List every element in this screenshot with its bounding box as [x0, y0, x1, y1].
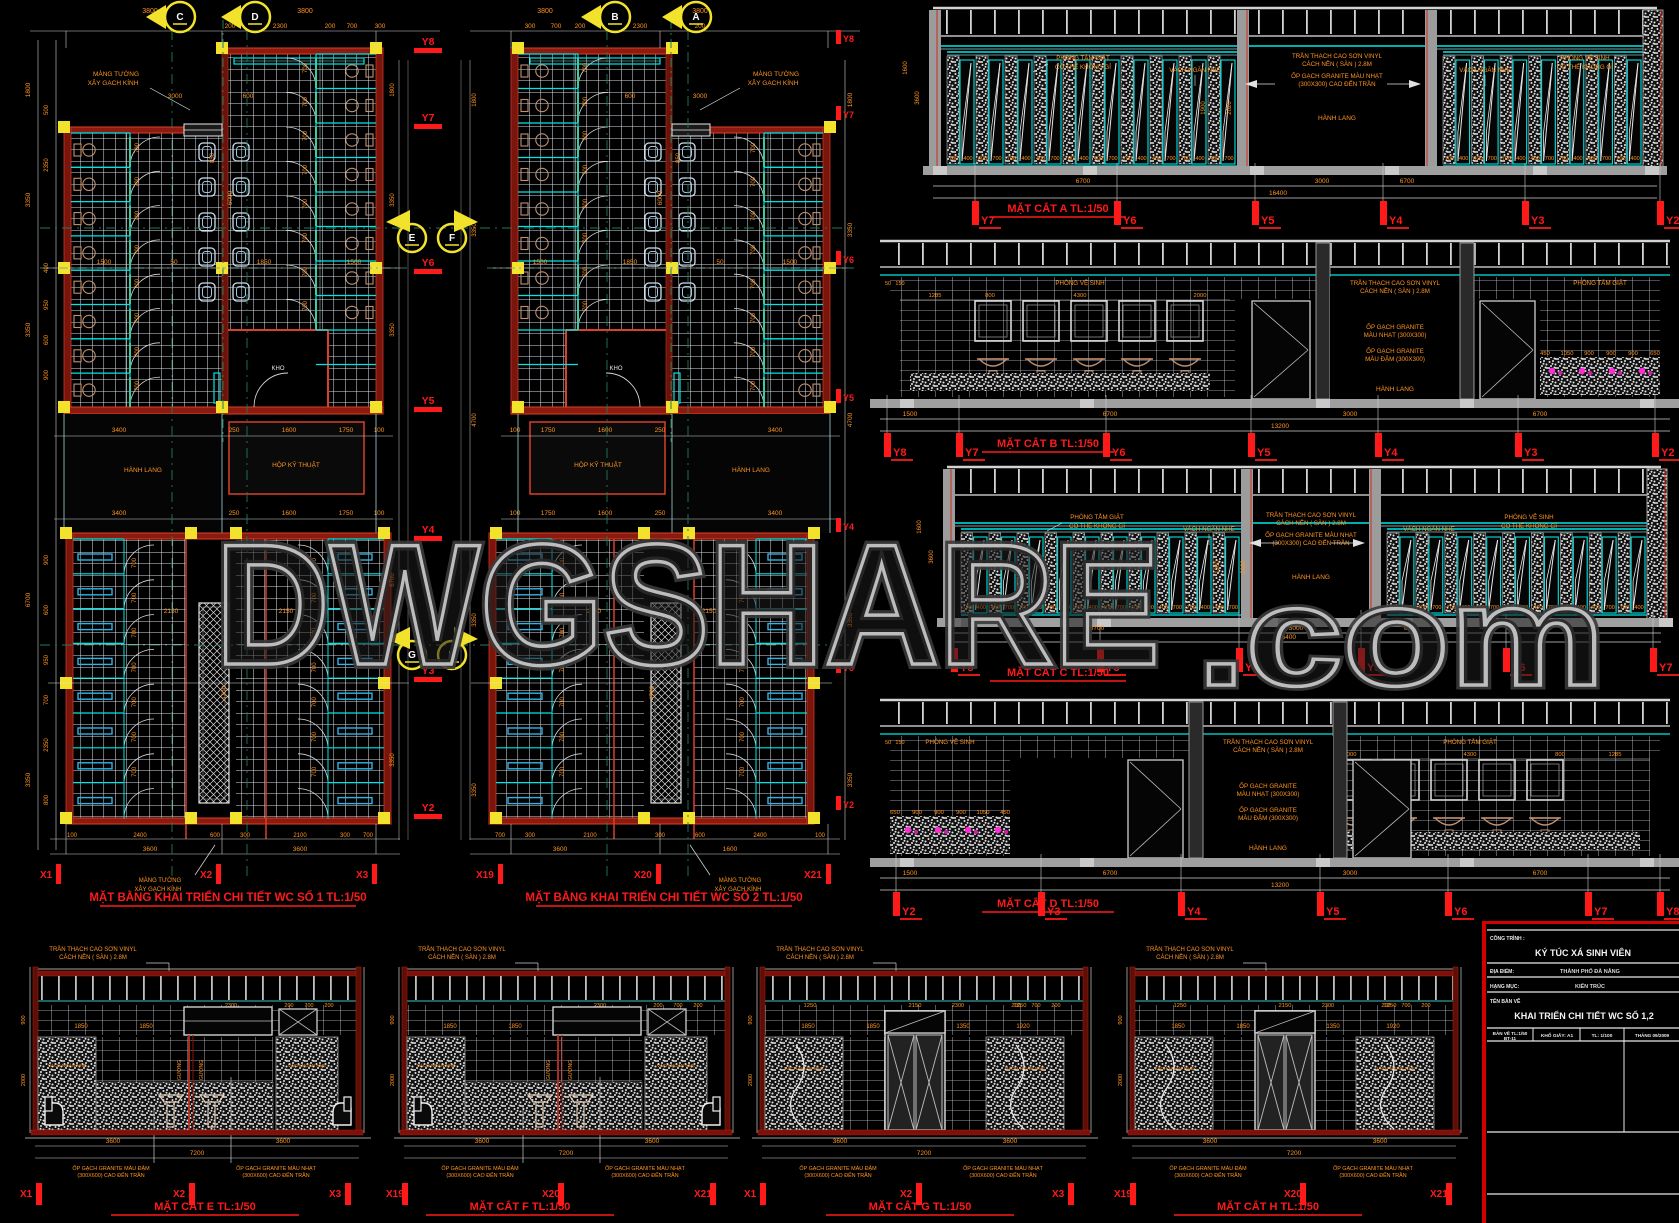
- svg-text:Y6: Y6: [843, 255, 854, 265]
- svg-text:700: 700: [132, 662, 138, 673]
- svg-text:700: 700: [583, 198, 589, 209]
- svg-text:1900: 1900: [1201, 101, 1207, 115]
- svg-text:6700: 6700: [1533, 870, 1548, 877]
- svg-text:150: 150: [895, 281, 904, 287]
- svg-text:6700: 6700: [1400, 178, 1415, 185]
- svg-text:700: 700: [303, 130, 309, 141]
- svg-text:400: 400: [1459, 156, 1468, 162]
- svg-text:700: 700: [1602, 156, 1611, 162]
- svg-text:MẶT CẮT B TL:1/50: MẶT CẮT B TL:1/50: [997, 437, 1099, 450]
- svg-text:3600: 3600: [1373, 1138, 1388, 1145]
- svg-text:900: 900: [912, 810, 922, 816]
- svg-text:CÁCH NỀN ( SÀN ) 2.8M: CÁCH NỀN ( SÀN ) 2.8M: [428, 954, 496, 961]
- svg-text:MÀNG TƯỜNG: MÀNG TƯỜNG: [93, 69, 139, 78]
- svg-text:400: 400: [1588, 156, 1597, 162]
- svg-text:700: 700: [751, 244, 757, 255]
- svg-text:TRẦN THẠCH CAO SƠN VINYL: TRẦN THẠCH CAO SƠN VINYL: [1223, 739, 1314, 746]
- svg-text:400: 400: [1195, 156, 1204, 162]
- svg-text:ỐP GẠCH GRANITE MÀU ĐẬM: ỐP GẠCH GRANITE MÀU ĐẬM: [799, 1165, 877, 1172]
- svg-text:X1: X1: [20, 1189, 33, 1200]
- svg-text:KIẾN TRÚC: KIẾN TRÚC: [1575, 983, 1605, 990]
- svg-text:MẶT CẮT D TL:1/50: MẶT CẮT D TL:1/50: [997, 897, 1099, 910]
- svg-text:GƯƠNG: GƯƠNG: [546, 1060, 552, 1080]
- svg-text:2100: 2100: [583, 833, 597, 839]
- svg-text:900: 900: [934, 810, 944, 816]
- svg-text:700: 700: [132, 766, 138, 777]
- svg-text:1250: 1250: [804, 1003, 817, 1009]
- svg-text:200: 200: [284, 1003, 293, 1009]
- svg-text:Y5: Y5: [1257, 447, 1270, 459]
- svg-text:700: 700: [751, 176, 757, 187]
- svg-text:700: 700: [132, 557, 138, 568]
- svg-text:900: 900: [956, 810, 966, 816]
- svg-text:700: 700: [135, 380, 141, 391]
- svg-text:1250: 1250: [1384, 1003, 1397, 1009]
- svg-text:1600: 1600: [598, 427, 613, 434]
- svg-text:400: 400: [1137, 156, 1146, 162]
- svg-text:2400: 2400: [133, 833, 147, 839]
- svg-text:2350: 2350: [44, 158, 50, 172]
- svg-text:2150: 2150: [164, 608, 179, 615]
- svg-text:3600: 3600: [276, 1138, 291, 1145]
- svg-text:VÁCH NGĂN NHẸ: VÁCH NGĂN NHẸ: [417, 1062, 455, 1068]
- svg-text:200: 200: [1051, 1003, 1060, 1009]
- svg-text:200: 200: [575, 23, 586, 30]
- svg-text:150: 150: [895, 740, 904, 746]
- svg-text:900: 900: [1584, 351, 1594, 357]
- svg-text:400: 400: [1473, 156, 1482, 162]
- svg-text:GƯƠNG: GƯƠNG: [177, 1060, 183, 1080]
- svg-text:X3: X3: [1052, 1189, 1065, 1200]
- svg-text:3350: 3350: [25, 192, 32, 207]
- svg-text:2020: 2020: [1227, 101, 1233, 115]
- svg-text:1800: 1800: [472, 93, 478, 107]
- svg-text:700: 700: [1620, 605, 1629, 611]
- svg-text:Y4: Y4: [1389, 215, 1403, 227]
- svg-text:6700: 6700: [25, 592, 32, 607]
- svg-text:700: 700: [303, 164, 309, 175]
- svg-text:PHÒNG TẮM GIẶT: PHÒNG TẮM GIẶT: [1573, 279, 1627, 287]
- svg-text:3600: 3600: [915, 91, 921, 105]
- svg-text:1850: 1850: [866, 1024, 880, 1030]
- svg-text:50: 50: [170, 259, 178, 266]
- svg-text:(300X600) CAO ĐẾN TRẦN: (300X600) CAO ĐẾN TRẦN: [969, 1172, 1036, 1179]
- svg-text:100: 100: [67, 833, 78, 839]
- svg-text:Y7: Y7: [965, 447, 978, 459]
- svg-text:Y4: Y4: [1187, 906, 1201, 918]
- svg-text:CÔNG TRÌNH :: CÔNG TRÌNH :: [1490, 934, 1525, 942]
- svg-text:6700: 6700: [1533, 411, 1548, 418]
- svg-text:X2: X2: [900, 1189, 913, 1200]
- svg-text:850: 850: [210, 152, 216, 163]
- svg-text:1350: 1350: [956, 1024, 970, 1030]
- svg-text:1850: 1850: [1171, 1024, 1185, 1030]
- svg-text:(300X600) CAO ĐẾN TRẦN: (300X600) CAO ĐẾN TRẦN: [804, 1172, 871, 1179]
- svg-text:X1: X1: [40, 870, 53, 881]
- svg-text:VÁCH NGĂN NHẸ: VÁCH NGĂN NHẸ: [1459, 67, 1511, 74]
- svg-text:3600: 3600: [1203, 1138, 1218, 1145]
- svg-text:DWGSHARE: DWGSHARE: [215, 509, 1160, 701]
- svg-text:ỐP GẠCH GRANITE MÀU NHẠT: ỐP GẠCH GRANITE MÀU NHẠT: [605, 1165, 686, 1172]
- svg-text:250: 250: [229, 427, 240, 434]
- svg-text:700: 700: [132, 731, 138, 742]
- svg-text:200: 200: [1421, 1003, 1430, 1009]
- svg-text:PHÒNG VỆ SINH: PHÒNG VỆ SINH: [925, 738, 974, 746]
- svg-text:Y2: Y2: [902, 906, 915, 918]
- svg-text:ỐP GẠCH GRANITE MÀU NHẠT: ỐP GẠCH GRANITE MÀU NHẠT: [963, 1165, 1044, 1172]
- svg-text:700: 700: [751, 312, 757, 323]
- svg-text:50: 50: [885, 281, 891, 287]
- svg-text:900: 900: [44, 369, 50, 380]
- svg-text:ỐP GẠCH GRANITE MÀU ĐẬM: ỐP GẠCH GRANITE MÀU ĐẬM: [1169, 1165, 1247, 1172]
- svg-text:HẠNG MỤC:: HẠNG MỤC:: [1490, 984, 1519, 990]
- svg-text:3350: 3350: [25, 772, 32, 787]
- svg-text:7200: 7200: [559, 1150, 574, 1157]
- svg-text:700: 700: [1166, 156, 1175, 162]
- svg-text:6000: 6000: [657, 190, 664, 205]
- svg-text:TRẦN THẠCH CAO SƠN VINYL: TRẦN THẠCH CAO SƠN VINYL: [1350, 280, 1441, 287]
- svg-text:3000: 3000: [1343, 411, 1358, 418]
- svg-text:TÊN BẢN VẼ: TÊN BẢN VẼ: [1490, 997, 1521, 1005]
- svg-text:700: 700: [1007, 156, 1016, 162]
- svg-text:600: 600: [44, 334, 50, 345]
- svg-text:13200: 13200: [1271, 882, 1289, 889]
- svg-text:HÀNH LANG: HÀNH LANG: [732, 465, 770, 474]
- svg-text:MÀNG TƯỜNG: MÀNG TƯỜNG: [139, 877, 182, 884]
- svg-text:1500: 1500: [347, 259, 362, 266]
- svg-text:400: 400: [1079, 156, 1088, 162]
- svg-text:50: 50: [885, 740, 891, 746]
- svg-text:ĐỊA ĐIỂM:: ĐỊA ĐIỂM:: [1490, 968, 1514, 975]
- svg-text:B: B: [611, 12, 618, 23]
- svg-text:700: 700: [751, 278, 757, 289]
- svg-text:700: 700: [135, 278, 141, 289]
- svg-text:MẶT CẮT E TL:1/50: MẶT CẮT E TL:1/50: [154, 1200, 255, 1213]
- svg-text:3000: 3000: [693, 93, 708, 100]
- svg-text:1600: 1600: [903, 61, 909, 75]
- svg-text:THÁNG 09/2009: THÁNG 09/2009: [1635, 1032, 1670, 1038]
- svg-text:MÀU NHẠT (300X300): MÀU NHẠT (300X300): [1364, 332, 1427, 339]
- svg-text:950: 950: [44, 654, 50, 665]
- svg-text:1850: 1850: [508, 1024, 522, 1030]
- svg-text:PHÒNG TẮM GIẶT: PHÒNG TẮM GIẶT: [1443, 738, 1497, 746]
- svg-text:Y6: Y6: [1112, 447, 1125, 459]
- svg-text:Y2: Y2: [1661, 447, 1674, 459]
- svg-text:CÁCH NỀN ( SÀN ) 2.8M: CÁCH NỀN ( SÀN ) 2.8M: [786, 954, 854, 961]
- svg-text:600: 600: [210, 833, 221, 839]
- svg-text:X19: X19: [386, 1189, 404, 1200]
- svg-text:400: 400: [1630, 156, 1639, 162]
- svg-text:500: 500: [44, 104, 50, 115]
- svg-text:16400: 16400: [1269, 190, 1287, 197]
- svg-text:1600: 1600: [282, 427, 297, 434]
- svg-text:2300: 2300: [1322, 1003, 1334, 1009]
- svg-text:CÁCH NỀN ( SÀN ) 2.8M: CÁCH NỀN ( SÀN ) 2.8M: [59, 954, 127, 961]
- svg-text:1850: 1850: [443, 1024, 457, 1030]
- svg-text:ỐP GẠCH GRANITE: ỐP GẠCH GRANITE: [1366, 348, 1424, 355]
- svg-text:700: 700: [132, 697, 138, 708]
- svg-text:(300X600) CAO ĐẾN TRẦN: (300X600) CAO ĐẾN TRẦN: [1339, 1172, 1406, 1179]
- svg-text:(300X300) CAO ĐẾN TRẦN: (300X300) CAO ĐẾN TRẦN: [1272, 540, 1349, 547]
- svg-text:700: 700: [303, 266, 309, 277]
- svg-text:1350: 1350: [1326, 1024, 1340, 1030]
- svg-text:3350: 3350: [847, 772, 854, 787]
- svg-text:TRẦN THẠCH CAO SƠN VINYL: TRẦN THẠCH CAO SƠN VINYL: [49, 946, 137, 953]
- svg-text:1500: 1500: [903, 411, 918, 418]
- svg-text:600: 600: [625, 93, 636, 100]
- svg-text:(300X600) CAO ĐẾN TRẦN: (300X600) CAO ĐẾN TRẦN: [446, 1172, 513, 1179]
- svg-text:3600: 3600: [475, 1138, 490, 1145]
- svg-text:CÓ THỂ KHÔNG GỈ: CÓ THỂ KHÔNG GỈ: [1501, 523, 1557, 530]
- svg-text:VÁCH NGĂN NHẸ: VÁCH NGĂN NHẸ: [1005, 1065, 1045, 1072]
- svg-text:VÁCH NGĂN NHẸ: VÁCH NGĂN NHẸ: [1375, 1065, 1415, 1072]
- svg-text:Y5: Y5: [1261, 215, 1274, 227]
- svg-text:ỐP GẠCH GRANITE: ỐP GẠCH GRANITE: [1239, 807, 1297, 814]
- svg-text:2150: 2150: [1279, 1003, 1292, 1009]
- svg-text:2000: 2000: [390, 1074, 396, 1086]
- svg-text:700: 700: [751, 380, 757, 391]
- svg-text:1250: 1250: [1174, 1003, 1187, 1009]
- svg-text:900: 900: [21, 1015, 27, 1024]
- svg-text:4700: 4700: [472, 413, 478, 427]
- svg-text:1500: 1500: [783, 259, 798, 266]
- svg-text:3350: 3350: [390, 323, 396, 337]
- svg-text:700: 700: [1050, 156, 1059, 162]
- svg-text:Y8: Y8: [422, 36, 435, 48]
- svg-text:VÁCH NGĂN NHẸ: VÁCH NGĂN NHẸ: [1403, 526, 1455, 533]
- svg-text:300: 300: [655, 833, 666, 839]
- svg-text:VÁCH NGĂN NHẸ: VÁCH NGĂN NHẸ: [657, 1062, 695, 1068]
- svg-text:HÀNH LANG: HÀNH LANG: [1376, 384, 1414, 393]
- svg-text:6700: 6700: [1103, 411, 1118, 418]
- svg-text:700: 700: [583, 266, 589, 277]
- svg-text:700: 700: [303, 300, 309, 311]
- svg-text:CÁCH NỀN ( SÀN ) 2.8M: CÁCH NỀN ( SÀN ) 2.8M: [1360, 288, 1430, 295]
- svg-text:1800: 1800: [390, 83, 396, 97]
- svg-text:2350: 2350: [44, 738, 50, 752]
- svg-text:CÁCH NỀN ( SÀN ) 2.8M: CÁCH NỀN ( SÀN ) 2.8M: [1233, 747, 1303, 754]
- svg-text:BT-11: BT-11: [1504, 1036, 1517, 1041]
- svg-text:CÓ THỂ KHÔNG GỈ: CÓ THỂ KHÔNG GỈ: [1055, 64, 1111, 71]
- svg-text:700: 700: [132, 592, 138, 603]
- svg-text:HỘP KỸ THUẬT: HỘP KỸ THUẬT: [272, 460, 320, 469]
- svg-text:700: 700: [751, 346, 757, 357]
- svg-text:XÂY GẠCH KÍNH: XÂY GẠCH KÍNH: [88, 78, 139, 87]
- svg-text:3350: 3350: [472, 223, 478, 237]
- svg-text:Y2: Y2: [843, 800, 854, 810]
- svg-text:700: 700: [560, 731, 566, 742]
- svg-text:MÀU NHẠT (300X300): MÀU NHẠT (300X300): [1237, 791, 1300, 798]
- svg-text:6700: 6700: [1076, 178, 1091, 185]
- svg-text:X3: X3: [329, 1189, 342, 1200]
- svg-text:700: 700: [303, 232, 309, 243]
- svg-text:400: 400: [1036, 156, 1045, 162]
- svg-text:100: 100: [815, 833, 826, 839]
- svg-text:700: 700: [1224, 156, 1233, 162]
- svg-text:700: 700: [495, 833, 506, 839]
- svg-text:ỐP GẠCH GRANITE: ỐP GẠCH GRANITE: [1239, 783, 1297, 790]
- svg-text:Y8: Y8: [893, 447, 906, 459]
- svg-text:1285: 1285: [1609, 752, 1622, 758]
- svg-text:A: A: [692, 12, 699, 23]
- svg-text:800: 800: [1555, 752, 1565, 758]
- svg-text:ỐP GẠCH GRANITE MÀU NHẠT: ỐP GẠCH GRANITE MÀU NHẠT: [1333, 1165, 1414, 1172]
- svg-text:3600: 3600: [645, 1138, 660, 1145]
- svg-text:Y6: Y6: [422, 257, 435, 269]
- svg-text:Y7: Y7: [422, 112, 435, 124]
- svg-text:3600: 3600: [833, 1138, 848, 1145]
- svg-text:1850: 1850: [257, 259, 272, 266]
- svg-text:700: 700: [1445, 156, 1454, 162]
- svg-text:700: 700: [135, 176, 141, 187]
- svg-text:700: 700: [992, 156, 1001, 162]
- svg-text:X21: X21: [804, 870, 822, 881]
- svg-text:1920: 1920: [1386, 1024, 1400, 1030]
- svg-text:700: 700: [740, 766, 746, 777]
- svg-text:700: 700: [751, 142, 757, 153]
- svg-text:TRẦN THẠCH CAO SƠN VINYL: TRẦN THẠCH CAO SƠN VINYL: [776, 946, 864, 953]
- svg-text:Y8: Y8: [1666, 906, 1679, 918]
- svg-text:700: 700: [1488, 156, 1497, 162]
- svg-text:7200: 7200: [190, 1150, 205, 1157]
- svg-text:3600: 3600: [1003, 1138, 1018, 1145]
- svg-text:600: 600: [44, 604, 50, 615]
- svg-text:KHO: KHO: [271, 366, 284, 372]
- svg-text:X20: X20: [1284, 1189, 1302, 1200]
- svg-text:700: 700: [135, 346, 141, 357]
- svg-text:100: 100: [374, 427, 385, 434]
- svg-text:CÁCH NỀN ( SÀN ) 2.8M: CÁCH NỀN ( SÀN ) 2.8M: [1156, 954, 1224, 961]
- svg-text:700: 700: [740, 731, 746, 742]
- svg-text:X20: X20: [634, 870, 652, 881]
- svg-text:GƯƠNG: GƯƠNG: [199, 1060, 205, 1080]
- svg-text:Y3: Y3: [1531, 215, 1544, 227]
- svg-text:X20: X20: [542, 1189, 560, 1200]
- svg-text:ỐP GẠCH GRANITE MÀU NHẠT: ỐP GẠCH GRANITE MÀU NHẠT: [236, 1165, 317, 1172]
- svg-text:300: 300: [240, 833, 251, 839]
- svg-text:2000: 2000: [1118, 1074, 1124, 1086]
- svg-text:13200: 13200: [1271, 423, 1289, 430]
- svg-text:PHÒNG TẮM GIẶT: PHÒNG TẮM GIẶT: [1056, 54, 1110, 62]
- svg-text:1600: 1600: [723, 846, 738, 853]
- svg-text:200: 200: [693, 1003, 702, 1009]
- svg-text:700: 700: [583, 232, 589, 243]
- svg-text:Y6: Y6: [1454, 906, 1467, 918]
- svg-text:E: E: [409, 233, 416, 244]
- svg-text:PHÒNG VỆ SINH: PHÒNG VỆ SINH: [1504, 513, 1553, 521]
- svg-text:400: 400: [1573, 156, 1582, 162]
- svg-text:400: 400: [1021, 156, 1030, 162]
- svg-text:TRẦN THẠCH CAO SƠN VINYL: TRẦN THẠCH CAO SƠN VINYL: [1146, 946, 1234, 953]
- svg-text:700: 700: [1606, 605, 1615, 611]
- svg-text:700: 700: [560, 766, 566, 777]
- svg-text:MẶT CẮT F TL:1/50: MẶT CẮT F TL:1/50: [470, 1200, 571, 1213]
- svg-text:3000: 3000: [1343, 870, 1358, 877]
- svg-text:700: 700: [583, 300, 589, 311]
- svg-text:X21: X21: [694, 1189, 712, 1200]
- svg-text:HỘP KỸ THUẬT: HỘP KỸ THUẬT: [574, 460, 622, 469]
- svg-text:4300: 4300: [1074, 293, 1087, 299]
- svg-text:ỐP GẠCH GRANITE: ỐP GẠCH GRANITE: [1366, 324, 1424, 331]
- svg-text:Y8: Y8: [843, 34, 854, 44]
- svg-text:800: 800: [44, 794, 50, 805]
- svg-text:300: 300: [525, 23, 536, 30]
- svg-text:200: 200: [325, 23, 336, 30]
- svg-text:700: 700: [583, 130, 589, 141]
- svg-text:900: 900: [44, 554, 50, 565]
- svg-text:MÀNG TƯỜNG: MÀNG TƯỜNG: [753, 69, 799, 78]
- svg-text:600: 600: [243, 93, 254, 100]
- svg-text:1500: 1500: [533, 259, 548, 266]
- svg-text:650: 650: [890, 810, 900, 816]
- svg-text:7200: 7200: [1287, 1150, 1302, 1157]
- svg-text:700: 700: [949, 156, 958, 162]
- svg-text:700: 700: [1401, 1003, 1410, 1009]
- svg-text:GƯƠNG: GƯƠNG: [568, 1060, 574, 1080]
- svg-text:(300X600) CAO ĐẾN TRẦN: (300X600) CAO ĐẾN TRẦN: [77, 1172, 144, 1179]
- svg-text:Y3: Y3: [1524, 447, 1537, 459]
- svg-text:MẶT CẮT A TL:1/50: MẶT CẮT A TL:1/50: [1007, 202, 1108, 215]
- svg-text:900: 900: [748, 1015, 754, 1024]
- svg-text:3400: 3400: [112, 510, 127, 517]
- svg-text:600: 600: [695, 833, 706, 839]
- svg-text:1050: 1050: [1561, 351, 1574, 357]
- svg-text:700: 700: [312, 766, 318, 777]
- svg-text:700: 700: [1559, 156, 1568, 162]
- svg-text:700: 700: [132, 627, 138, 638]
- svg-text:1500: 1500: [903, 870, 918, 877]
- svg-text:900: 900: [390, 1015, 396, 1024]
- svg-text:2000: 2000: [21, 1074, 27, 1086]
- svg-text:700: 700: [44, 694, 50, 705]
- svg-text:X2: X2: [173, 1189, 186, 1200]
- svg-text:X2: X2: [200, 870, 213, 881]
- svg-text:6700: 6700: [1103, 870, 1118, 877]
- svg-text:1850: 1850: [139, 1024, 153, 1030]
- svg-text:400: 400: [1516, 156, 1525, 162]
- svg-text:700: 700: [583, 62, 589, 73]
- svg-text:700: 700: [583, 96, 589, 107]
- svg-text:4300: 4300: [1464, 752, 1477, 758]
- svg-text:X21: X21: [1430, 1189, 1448, 1200]
- svg-text:700: 700: [551, 23, 562, 30]
- svg-text:TRẦN THẠCH CAO SƠN VINYL: TRẦN THẠCH CAO SƠN VINYL: [1292, 53, 1383, 60]
- svg-text:3800: 3800: [537, 8, 553, 15]
- svg-text:850: 850: [676, 152, 682, 163]
- svg-text:2300: 2300: [952, 1003, 964, 1009]
- svg-text:700: 700: [1502, 156, 1511, 162]
- svg-text:3350: 3350: [847, 222, 854, 237]
- svg-text:3600: 3600: [143, 846, 158, 853]
- svg-text:700: 700: [673, 1003, 682, 1009]
- svg-text:3600: 3600: [106, 1138, 121, 1145]
- svg-text:X1: X1: [744, 1189, 757, 1200]
- svg-text:Y5: Y5: [422, 395, 435, 407]
- svg-text:3000: 3000: [1315, 178, 1330, 185]
- svg-text:400: 400: [1094, 156, 1103, 162]
- svg-text:MẶT CẮT G TL:1/50: MẶT CẮT G TL:1/50: [869, 1200, 972, 1213]
- svg-text:Y7: Y7: [843, 110, 854, 120]
- svg-text:700: 700: [135, 210, 141, 221]
- svg-text:Y5: Y5: [1326, 906, 1339, 918]
- svg-text:250: 250: [655, 427, 666, 434]
- svg-text:700: 700: [1108, 156, 1117, 162]
- svg-text:950: 950: [44, 299, 50, 310]
- svg-text:KHỔ GIẤY: A1: KHỔ GIẤY: A1: [1541, 1032, 1574, 1039]
- svg-text:ỐP GẠCH GRANITE MÀU NHẠT: ỐP GẠCH GRANITE MÀU NHẠT: [1265, 532, 1357, 539]
- svg-text:700: 700: [1181, 156, 1190, 162]
- svg-text:KHAI TRIỂN CHI TIẾT WC SỐ 1,2: KHAI TRIỂN CHI TIẾT WC SỐ 1,2: [1514, 1010, 1654, 1021]
